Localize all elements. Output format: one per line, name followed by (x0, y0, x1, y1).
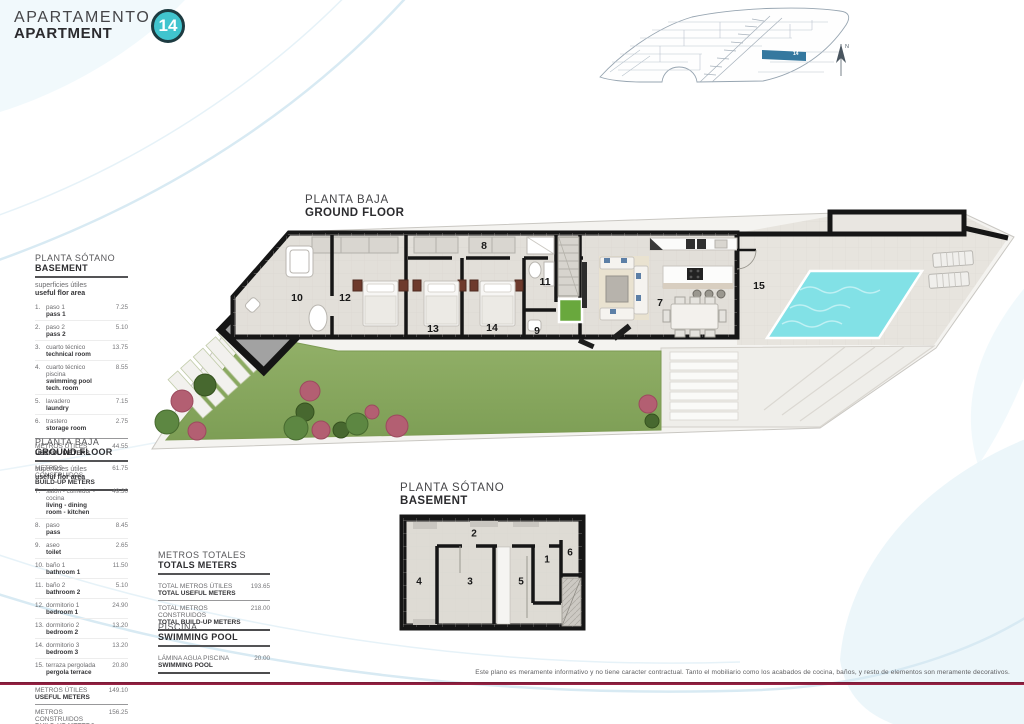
ground-floor-label-en: GROUND FLOOR (305, 207, 404, 220)
tv-unit (582, 262, 587, 308)
area-row: 5. lavadero laundry 7.15 (35, 395, 128, 415)
room-number: 7 (657, 297, 663, 309)
table-title-es: METROS TOTALES (158, 550, 270, 560)
area-row: 7. salón - comedor - cocina living - din… (35, 485, 128, 519)
basement-label-es: PLANTA SÓTANO (400, 482, 505, 495)
site-plan-unit-label: 14 (793, 51, 799, 57)
basement-lightwell (497, 547, 510, 624)
area-row: 4. cuarto técnico piscina swimming pool … (35, 361, 128, 395)
interior-stairs (558, 237, 579, 296)
area-row: 15. terraza pergolada pergola terrace 20… (35, 659, 128, 678)
basement-stairs (562, 578, 581, 626)
terrace-pergola-structure (830, 212, 964, 234)
table-subtitle: superficies útiles useful flor area (35, 282, 128, 298)
footer-accent-line (0, 682, 1024, 685)
room-number: 2 (471, 529, 477, 540)
area-rows: 1. paso 1 pass 1 7.25 2. paso 2 pass 2 5… (35, 301, 128, 434)
page-title-es: APARTAMENTO (14, 9, 150, 26)
area-row: 9. aseo toilet 2.65 (35, 539, 128, 559)
plan-graphics (0, 0, 1024, 724)
room-number: 3 (467, 577, 473, 588)
table-title-en: GROUND FLOOR (35, 447, 128, 457)
room-number: 15 (753, 280, 765, 292)
table-title-en: SWIMMING POOL (158, 632, 270, 642)
area-row: 10. baño 1 bathroom 1 11.50 (35, 559, 128, 579)
room-number: 9 (534, 325, 540, 337)
basement-floor-plan (403, 518, 582, 627)
table-title-en: BASEMENT (35, 263, 128, 273)
table-header: METROS TOTALES TOTALS METERS (158, 550, 270, 570)
room-number: 4 (416, 577, 422, 588)
total-row: TOTAL METROS ÚTILES TOTAL USEFUL METERS … (158, 579, 270, 601)
table-title-es: PLANTA SÓTANO (35, 253, 128, 263)
north-arrow-label: N (845, 44, 849, 50)
total-row: METROS ÚTILES USEFUL METERS 149.10 (35, 683, 128, 705)
room-number: 11 (539, 276, 550, 288)
table-header: PISCINA SWIMMING POOL (158, 622, 270, 642)
room-number: 1 (544, 555, 550, 566)
table-title-en: TOTALS METERS (158, 560, 270, 570)
page-title-en: APARTMENT (14, 26, 150, 42)
table-header: PLANTA BAJA GROUND FLOOR (35, 437, 128, 457)
ground-floor-plan (152, 212, 1014, 449)
area-row: 1. paso 1 pass 1 7.25 (35, 301, 128, 321)
area-row: 12. dormitorio 1 bedroom 1 24.90 (35, 599, 128, 619)
room-number: 14 (486, 322, 498, 334)
pool-rows: LÁMINA AGUA PISCINA SWIMMING POOL 20.00 (158, 651, 270, 674)
totals-meters-table: METROS TOTALES TOTALS METERS TOTAL METRO… (158, 550, 270, 631)
area-row: 14. dormitorio 3 bedroom 3 13.20 (35, 639, 128, 659)
area-row: 11. baño 2 bathroom 2 5.10 (35, 579, 128, 599)
divider (35, 276, 128, 278)
basement-label: PLANTA SÓTANO BASEMENT (400, 482, 505, 508)
floorplan-sheet: APARTAMENTO APARTMENT 14 14 N PLANTA BAJ… (0, 0, 1024, 724)
kitchen-furniture (650, 238, 737, 298)
ground-floor-label: PLANTA BAJA GROUND FLOOR (305, 194, 404, 220)
unit-number-badge: 14 (151, 9, 185, 43)
total-row: LÁMINA AGUA PISCINA SWIMMING POOL 20.00 (158, 651, 270, 674)
beds (353, 280, 523, 326)
outdoor-stairs (661, 346, 934, 427)
area-row: 6. trastero storage room 2.75 (35, 415, 128, 434)
table-title-es: PISCINA (158, 622, 270, 632)
disclaimer-text: Este plano es meramente informativo y no… (475, 669, 1010, 676)
room-number: 10 (291, 292, 303, 304)
interior-planter (559, 299, 582, 322)
area-row: 13. dormitorio 2 bedroom 2 13.20 (35, 619, 128, 639)
divider (158, 645, 270, 647)
area-rows: 7. salón - comedor - cocina living - din… (35, 485, 128, 678)
area-totals: METROS ÚTILES USEFUL METERS 149.10 METRO… (35, 682, 128, 724)
area-row: 3. cuarto técnico technical room 13.75 (35, 341, 128, 361)
room-number: 6 (567, 548, 573, 559)
table-subtitle: superficies útiles useful flor area (35, 466, 128, 482)
page-title: APARTAMENTO APARTMENT (14, 9, 150, 42)
table-title-es: PLANTA BAJA (35, 437, 128, 447)
basement-label-en: BASEMENT (400, 495, 505, 508)
room-number: 12 (339, 292, 351, 304)
divider (158, 573, 270, 575)
ground-floor-label-es: PLANTA BAJA (305, 194, 404, 207)
total-row: METROS CONSTRUIDOS BUILD-UP METERS 156.2… (35, 705, 128, 724)
site-plan (600, 8, 849, 82)
room-number: 8 (481, 240, 487, 252)
room-number: 5 (518, 577, 524, 588)
ground-floor-area-table: PLANTA BAJA GROUND FLOOR superficies úti… (35, 437, 128, 724)
swimming-pool-table: PISCINA SWIMMING POOL LÁMINA AGUA PISCIN… (158, 622, 270, 674)
table-header: PLANTA SÓTANO BASEMENT (35, 253, 128, 273)
area-row: 2. paso 2 pass 2 5.10 (35, 321, 128, 341)
room-number: 13 (427, 323, 439, 335)
area-row: 8. paso pass 8.45 (35, 519, 128, 539)
divider (35, 460, 128, 462)
